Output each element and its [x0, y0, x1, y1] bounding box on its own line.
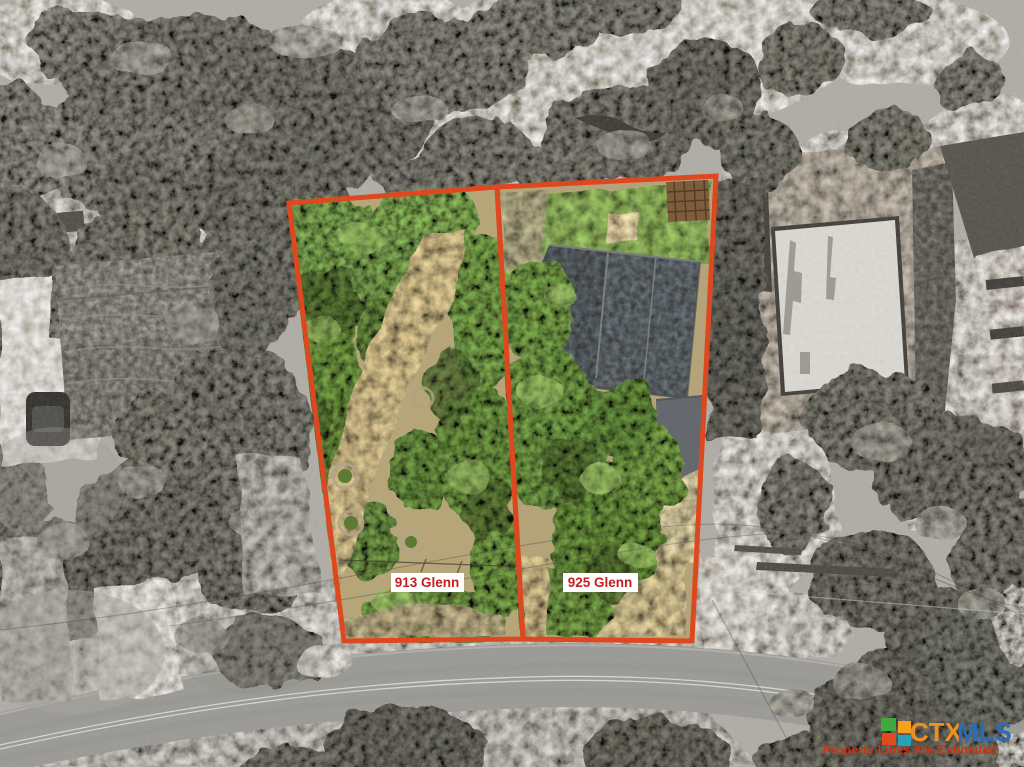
svg-text:925 Glenn: 925 Glenn [568, 575, 633, 590]
svg-text:Property Lines Are Estimated: Property Lines Are Estimated [823, 743, 998, 757]
svg-text:913 Glenn: 913 Glenn [395, 575, 460, 590]
